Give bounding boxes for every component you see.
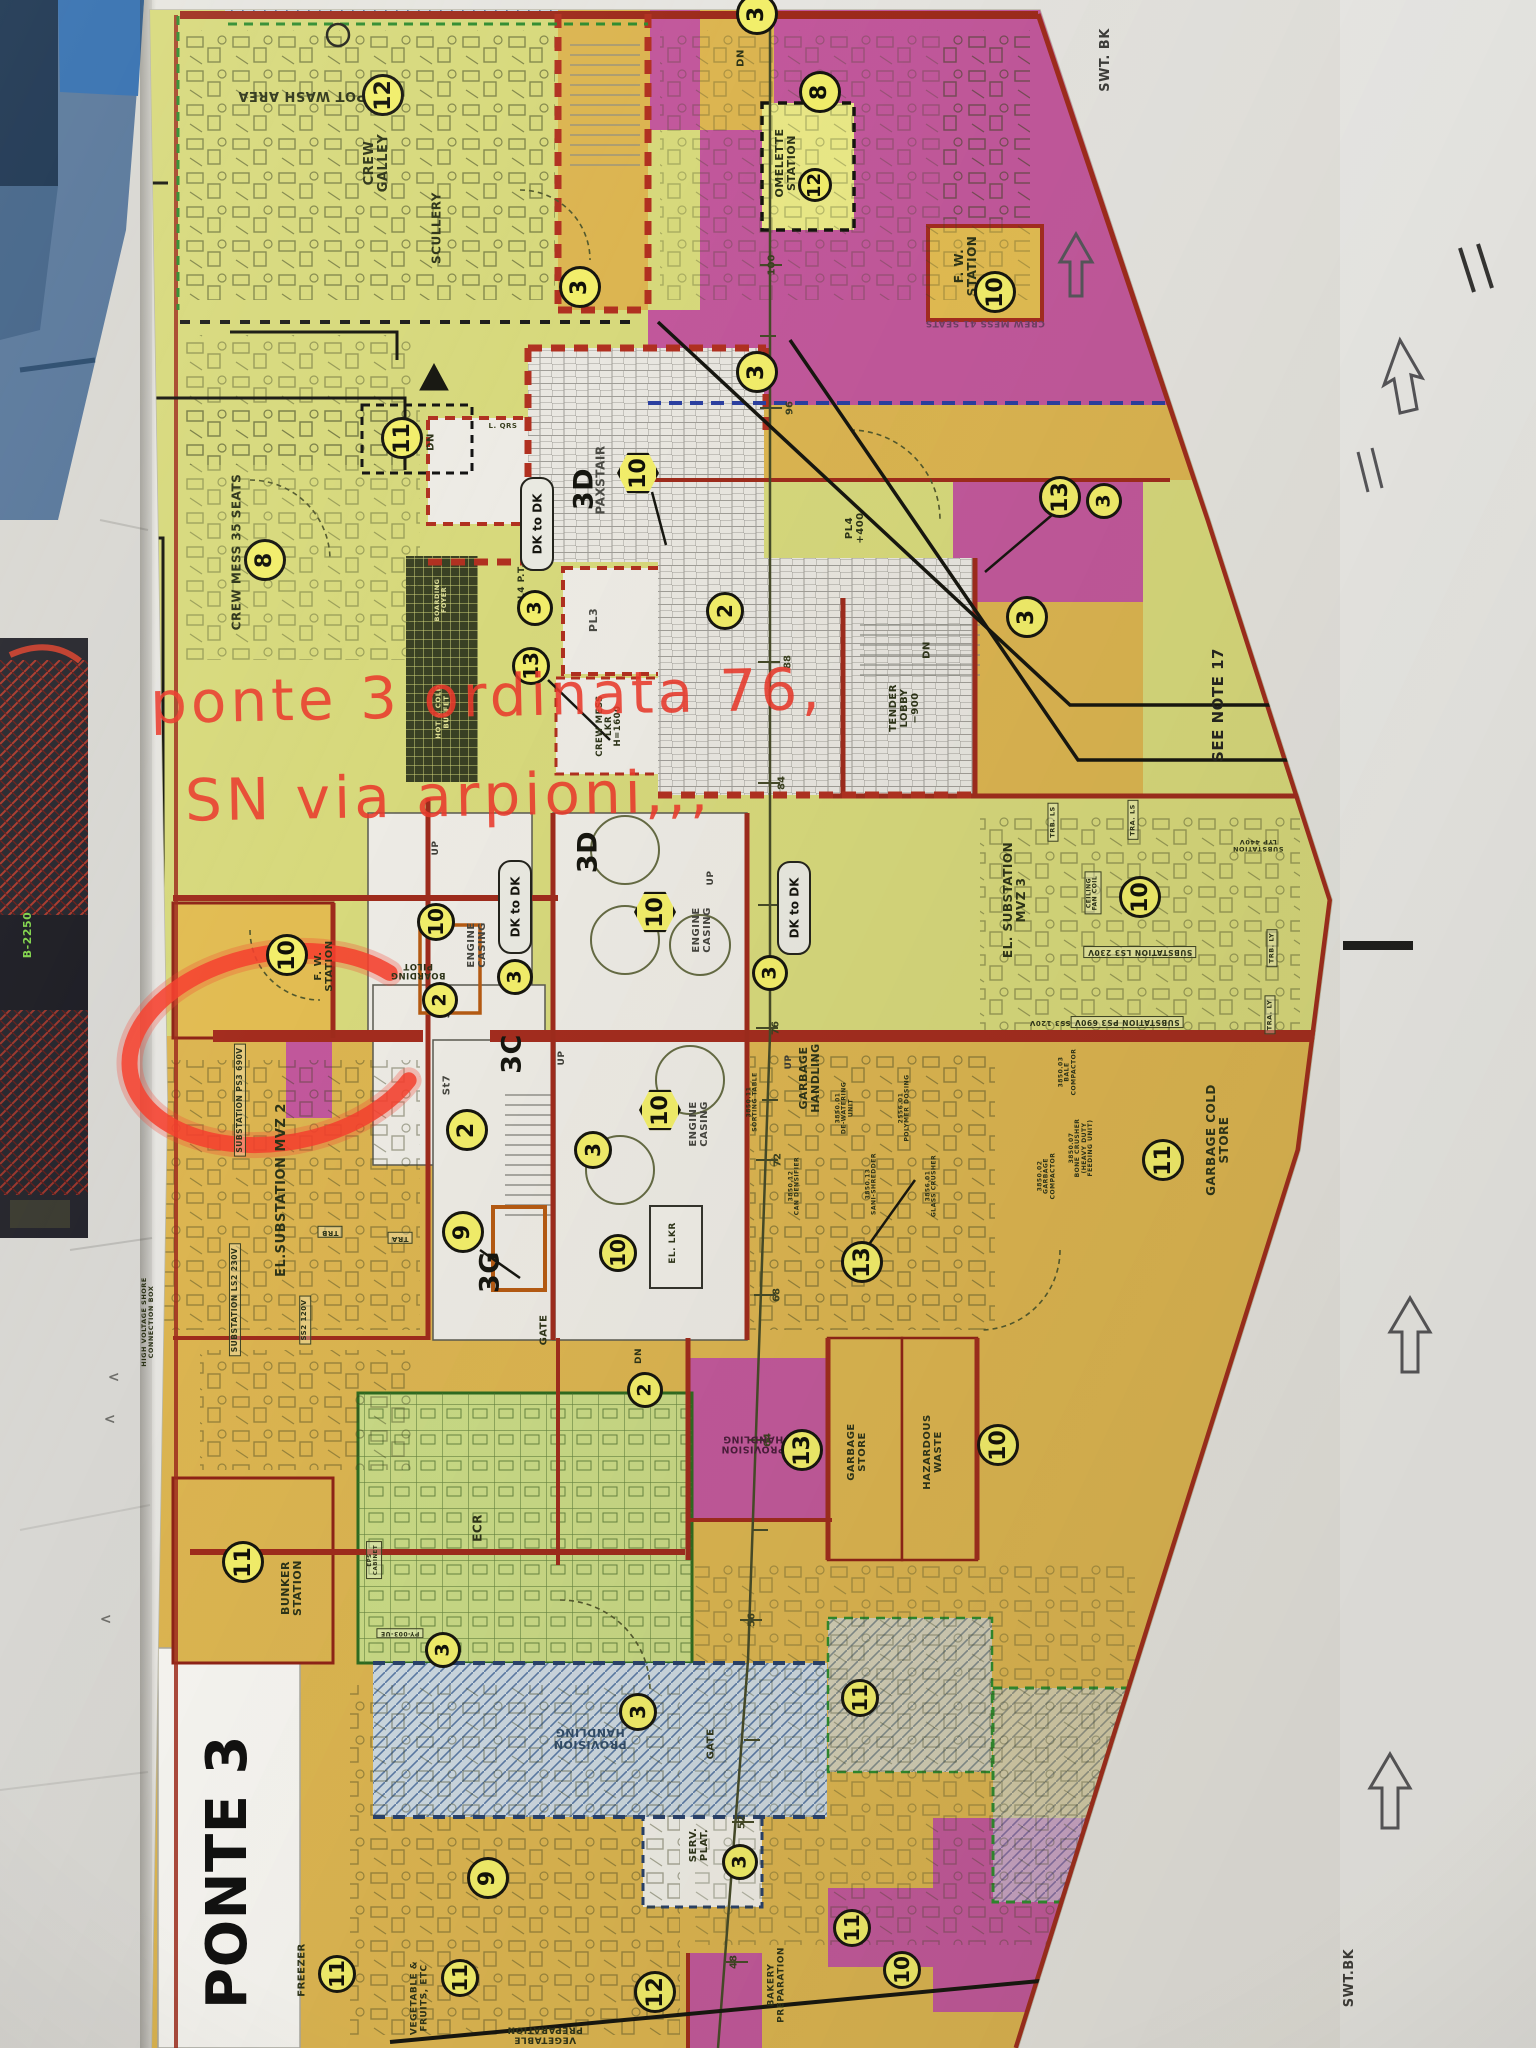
photo-vignette — [0, 0, 1536, 2048]
photographed-deck-plan: POT WASH AREACREW GALLEYSCULLERYOMELETTE… — [0, 0, 1536, 2048]
